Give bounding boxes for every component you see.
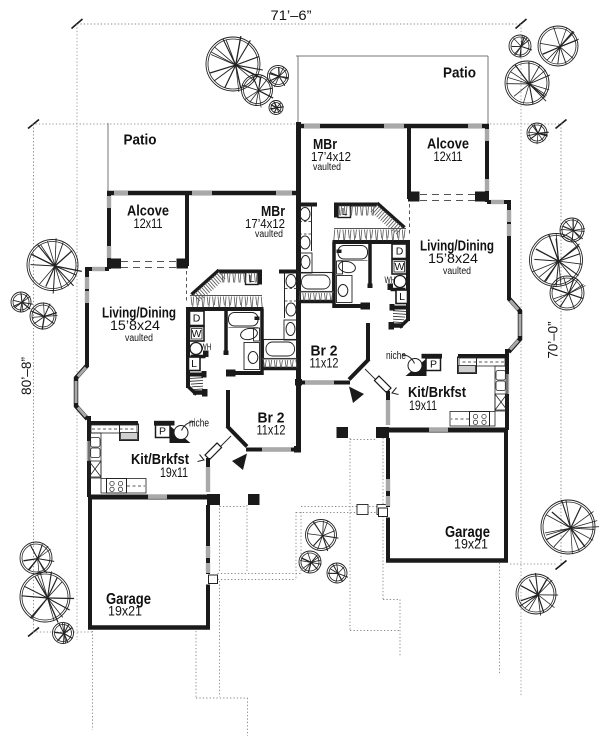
svg-text:vaulted: vaulted — [443, 266, 471, 277]
svg-text:70’–0”: 70’–0” — [546, 322, 561, 359]
svg-text:12x11: 12x11 — [434, 149, 463, 164]
svg-text:L: L — [342, 206, 348, 218]
svg-text:15’8x24: 15’8x24 — [110, 317, 160, 333]
svg-text:W: W — [395, 261, 405, 273]
svg-text:W: W — [192, 328, 202, 340]
svg-text:15’8x24: 15’8x24 — [428, 250, 478, 266]
svg-text:P: P — [159, 426, 166, 438]
svg-text:D: D — [193, 313, 201, 325]
svg-text:vaulted: vaulted — [125, 333, 153, 344]
svg-text:niche: niche — [386, 350, 406, 362]
svg-text:Patio: Patio — [124, 132, 157, 149]
svg-text:19x21: 19x21 — [454, 536, 488, 552]
svg-text:71’–6”: 71’–6” — [271, 8, 312, 23]
svg-text:19x21: 19x21 — [108, 603, 142, 619]
svg-text:11x12: 11x12 — [310, 356, 339, 371]
svg-text:L: L — [191, 358, 197, 370]
svg-text:80’–8”: 80’–8” — [19, 357, 34, 395]
svg-text:P: P — [430, 359, 437, 371]
svg-text:12x11: 12x11 — [134, 216, 163, 231]
svg-text:WH: WH — [201, 342, 212, 352]
svg-text:vaulted: vaulted — [313, 162, 341, 173]
svg-text:niche: niche — [189, 418, 209, 430]
svg-text:D: D — [396, 246, 404, 258]
svg-text:11x12: 11x12 — [257, 423, 286, 438]
svg-text:Patio: Patio — [443, 65, 476, 82]
svg-text:L: L — [249, 273, 255, 285]
svg-text:19x11: 19x11 — [409, 398, 437, 413]
svg-text:vaulted: vaulted — [255, 229, 283, 240]
svg-text:L: L — [399, 291, 405, 303]
svg-text:WH: WH — [385, 275, 396, 285]
svg-text:19x11: 19x11 — [160, 465, 188, 480]
